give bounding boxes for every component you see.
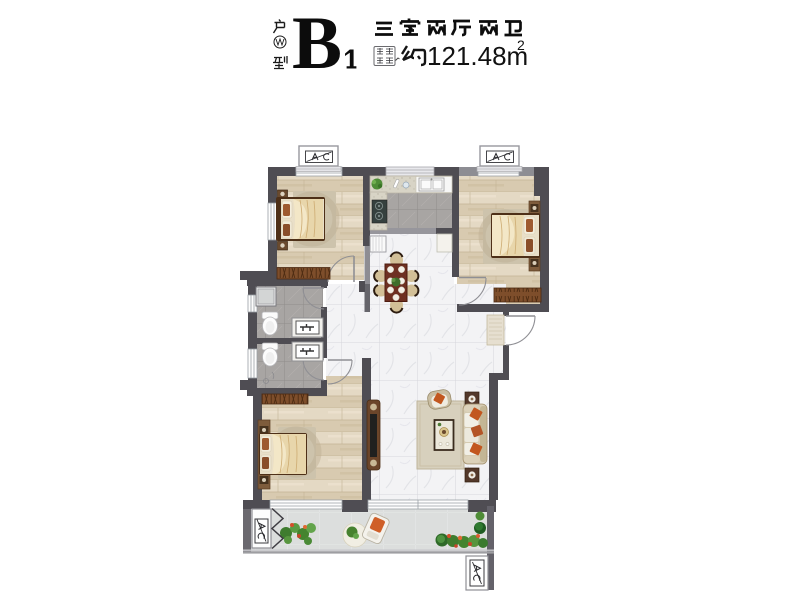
svg-text:121.48m: 121.48m xyxy=(427,41,528,71)
svg-text:2: 2 xyxy=(517,37,525,53)
svg-text:B: B xyxy=(292,2,342,85)
